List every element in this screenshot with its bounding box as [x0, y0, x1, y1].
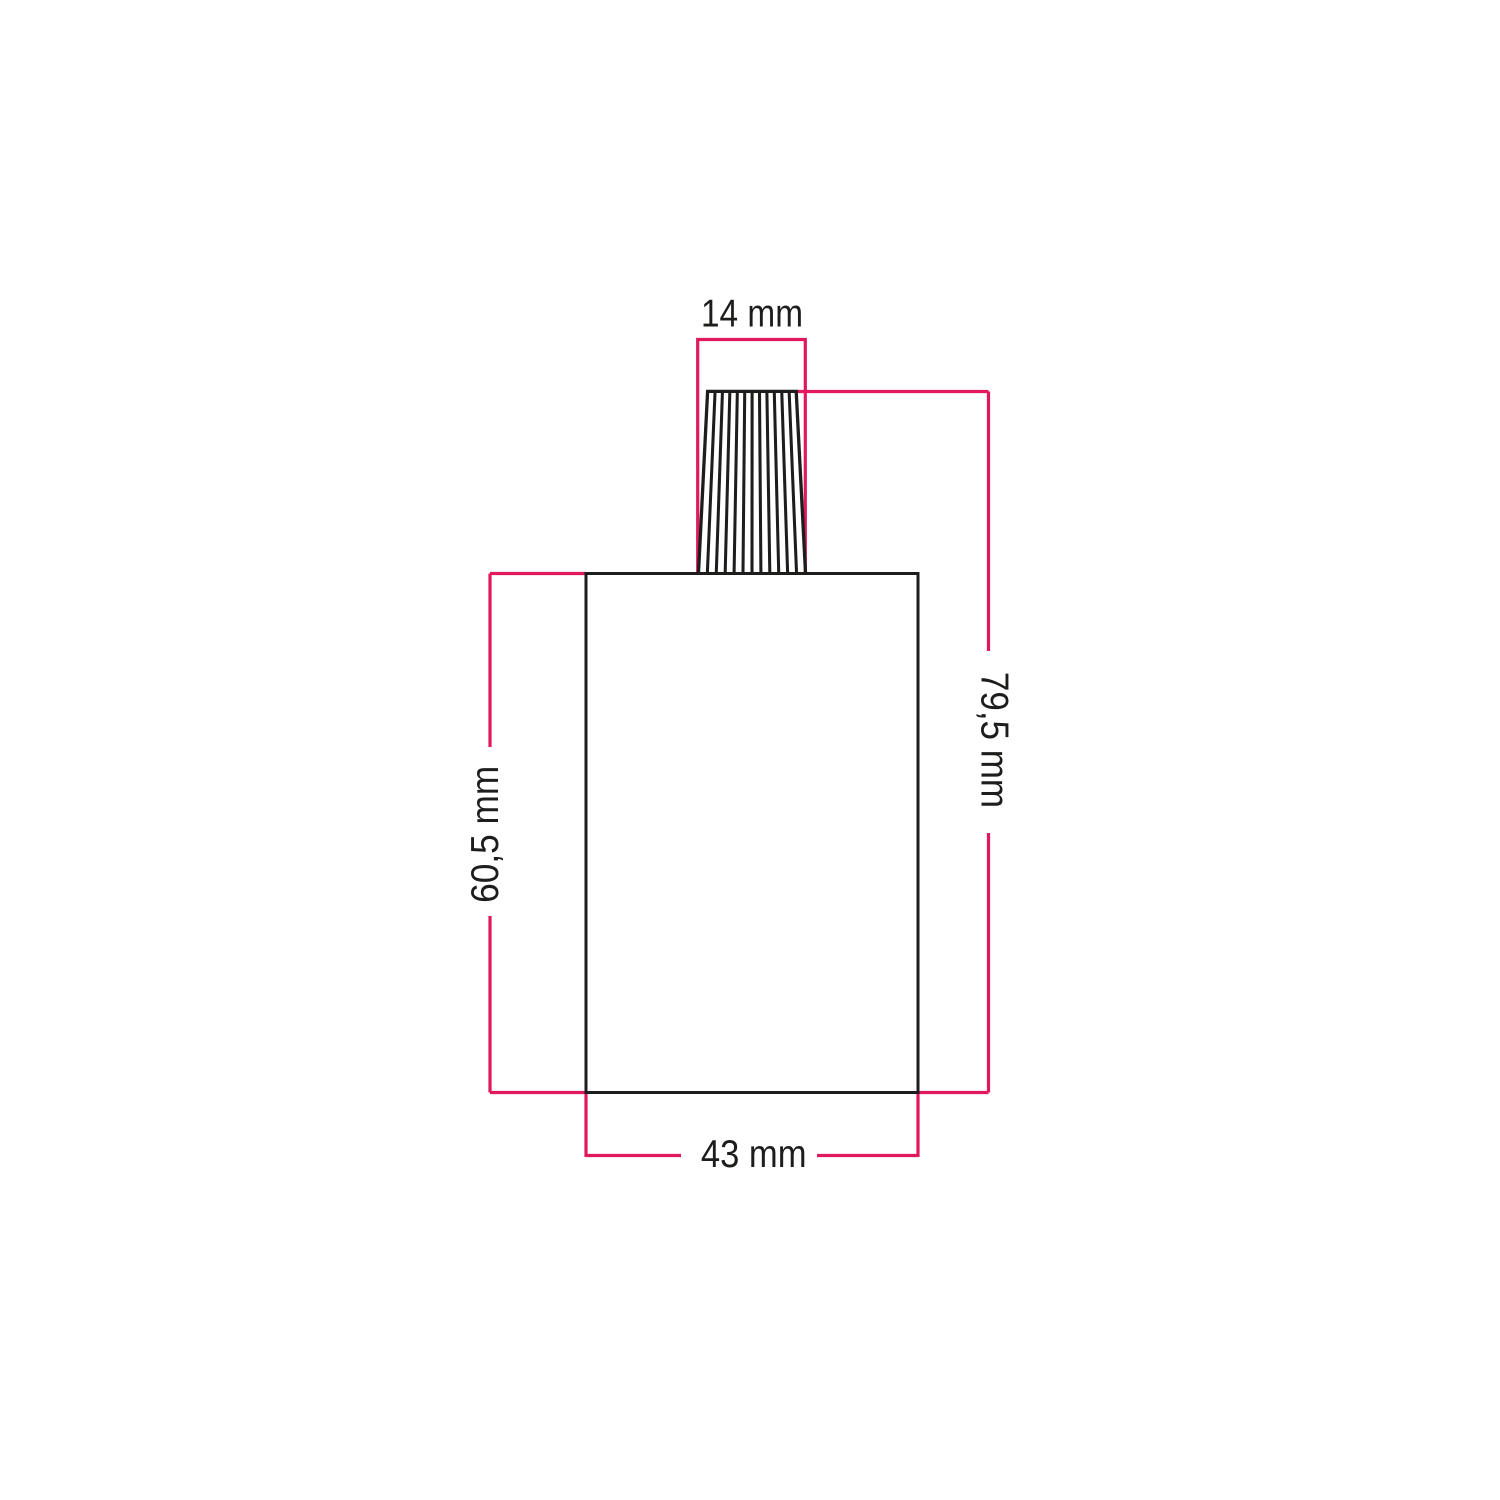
svg-text:79,5 mm: 79,5 mm [973, 672, 1016, 808]
svg-text:43 mm: 43 mm [701, 1133, 807, 1176]
svg-text:60,5 mm: 60,5 mm [464, 766, 507, 903]
svg-text:14 mm: 14 mm [701, 293, 803, 336]
